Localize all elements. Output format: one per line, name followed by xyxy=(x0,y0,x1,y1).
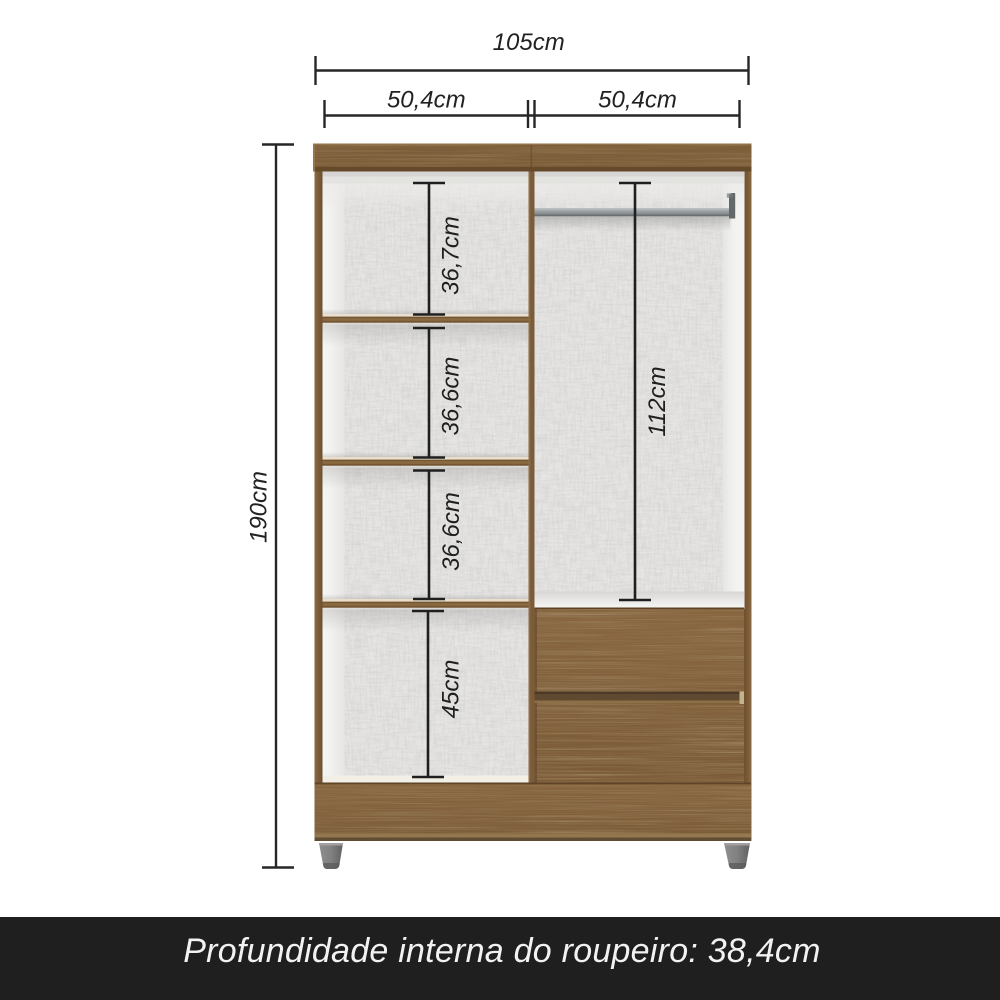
svg-text:36,7cm: 36,7cm xyxy=(438,216,465,295)
svg-text:50,4cm: 50,4cm xyxy=(387,87,466,114)
svg-text:50,4cm: 50,4cm xyxy=(598,87,677,114)
svg-text:45cm: 45cm xyxy=(438,660,465,719)
svg-text:105cm: 105cm xyxy=(493,29,565,56)
svg-text:190cm: 190cm xyxy=(245,471,272,543)
svg-text:36,6cm: 36,6cm xyxy=(438,357,465,436)
svg-text:Profundidade interna do roupei: Profundidade interna do roupeiro: 38,4cm xyxy=(183,932,821,970)
svg-text:112cm: 112cm xyxy=(644,366,671,436)
svg-text:36,6cm: 36,6cm xyxy=(438,492,465,571)
